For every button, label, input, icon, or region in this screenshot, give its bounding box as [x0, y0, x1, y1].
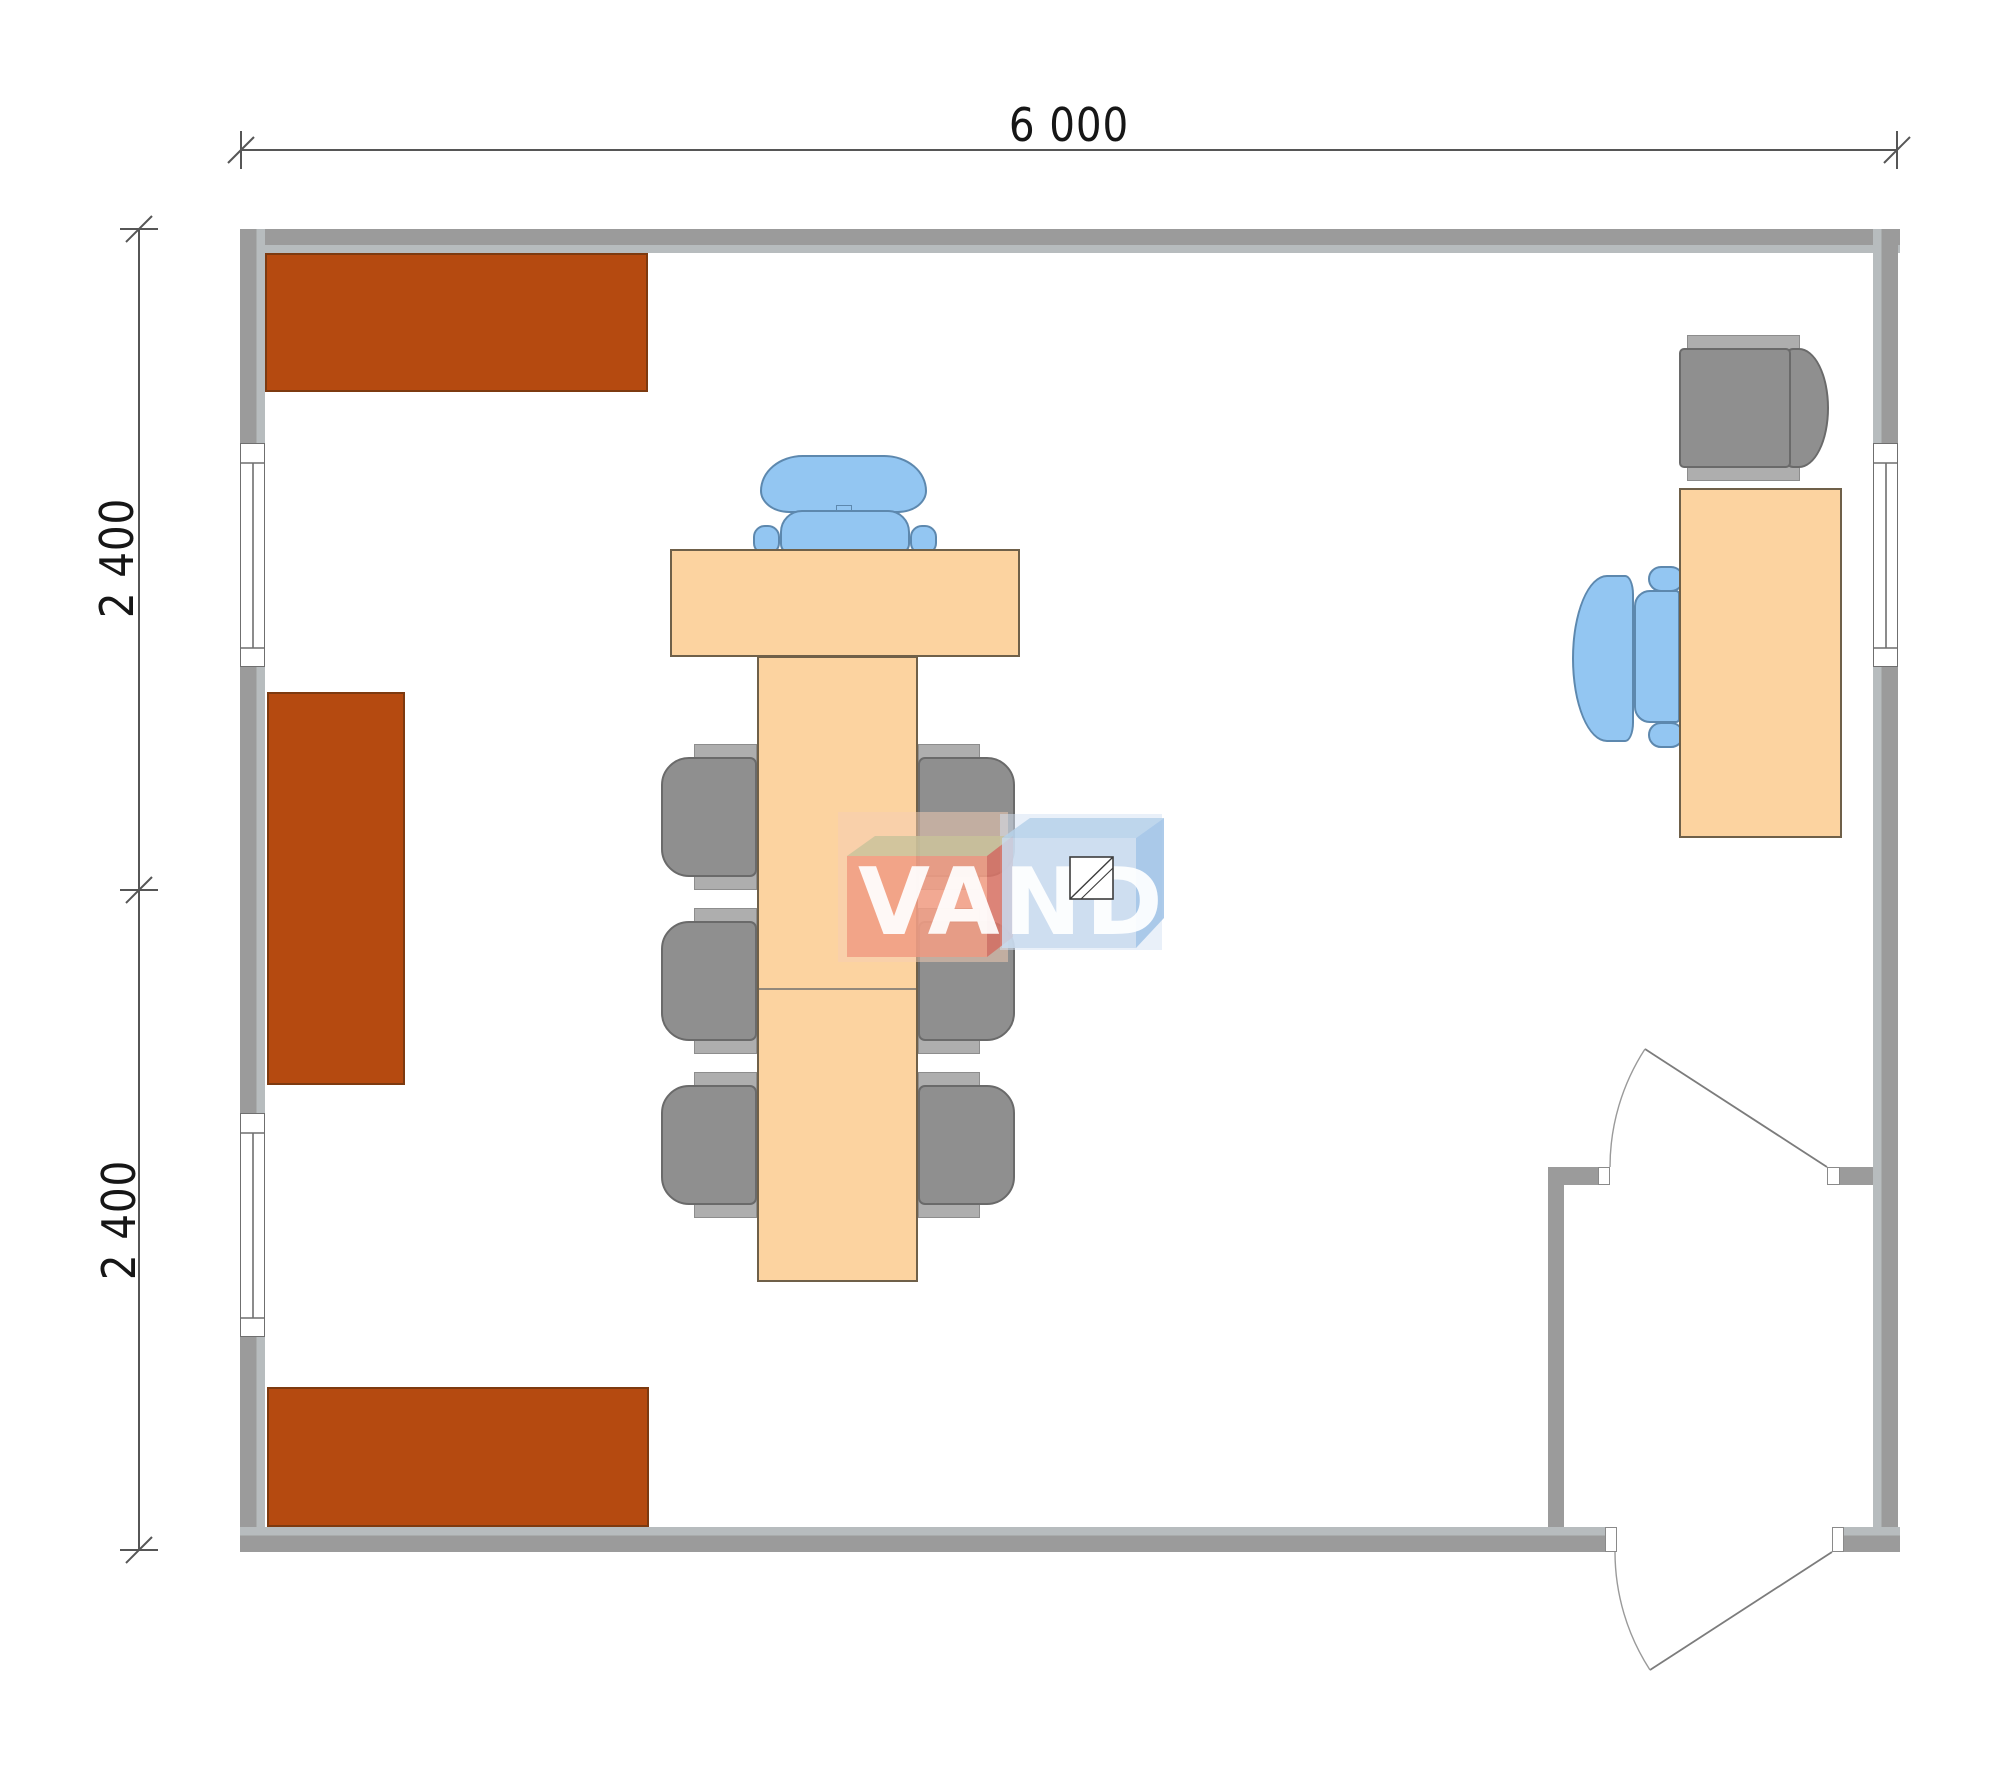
desk-chair-backrest [1572, 575, 1634, 742]
desk [1679, 488, 1842, 838]
cabinet-top-left [265, 253, 648, 392]
armchair-back [1786, 348, 1829, 468]
wall-west-upper [240, 229, 265, 443]
cabinet-middle-left [267, 692, 405, 1085]
meeting-chair-blue-seat [780, 510, 910, 554]
wall-east-upper [1873, 229, 1898, 443]
door-jamb [1832, 1527, 1844, 1552]
meeting-chair-left-1 [661, 757, 757, 877]
dimension-height-lower-label: 2 400 [92, 1160, 146, 1280]
hatch-square-symbol [1070, 857, 1113, 899]
desk-chair-seat [1634, 590, 1680, 723]
window-west-lower [240, 1113, 265, 1337]
door-exterior [1615, 1552, 1832, 1670]
meeting-table-long [757, 656, 918, 1282]
meeting-chair-right-1 [918, 757, 1015, 877]
meeting-table-head [670, 549, 1020, 657]
door-jamb [1598, 1167, 1610, 1185]
door-jamb [1605, 1527, 1617, 1552]
wall-south-right [1844, 1527, 1900, 1552]
wall-vestibule-top-right [1840, 1167, 1873, 1185]
wall-north [240, 229, 1900, 253]
meeting-chair-left-3 [661, 1085, 757, 1205]
wall-west-middle [240, 667, 265, 1113]
floor-plan: VANDA 6 000 2 400 2 400 [0, 0, 2000, 1773]
door-jamb [1827, 1167, 1840, 1185]
dimension-width-label: 6 000 [981, 98, 1157, 152]
door-interior [1610, 1049, 1827, 1167]
wall-vestibule-top-left [1548, 1167, 1598, 1185]
wall-vestibule-left [1548, 1185, 1564, 1527]
cabinet-bottom-left [267, 1387, 649, 1527]
dimension-line-left [120, 216, 158, 1563]
window-east [1873, 443, 1898, 667]
armchair-seat [1679, 348, 1791, 468]
wall-east-lower [1873, 667, 1898, 1552]
meeting-chair-right-2 [918, 921, 1015, 1041]
dimension-height-upper-label: 2 400 [90, 498, 144, 618]
wall-south-left [240, 1527, 1605, 1552]
wall-west-lower [240, 1337, 265, 1552]
window-west-upper [240, 443, 265, 667]
meeting-chair-right-3 [918, 1085, 1015, 1205]
meeting-chair-left-2 [661, 921, 757, 1041]
